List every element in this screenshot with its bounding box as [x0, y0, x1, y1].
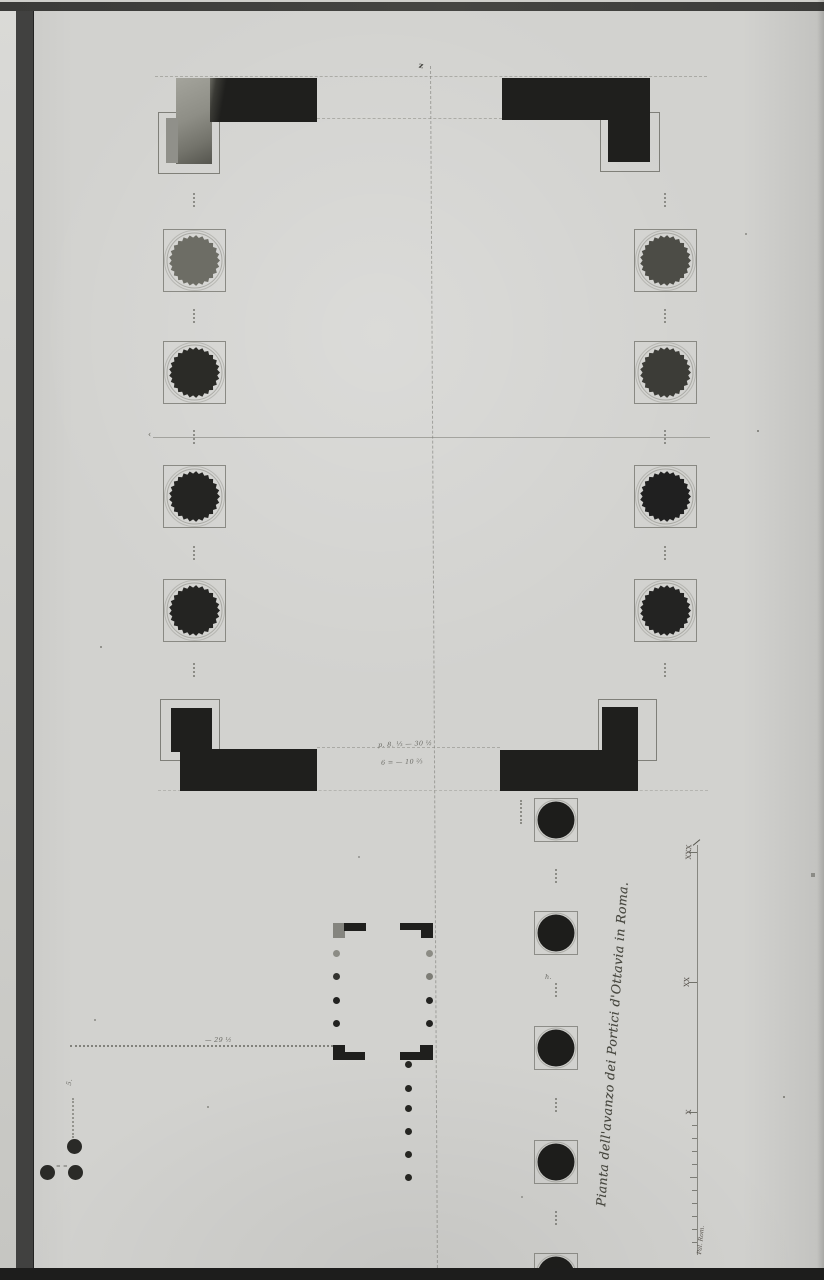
fluted-column-icon: [635, 466, 696, 527]
dimension-note-bottom: 6 = — 10 ⅔: [381, 757, 423, 766]
keyplan-right-dot-1: [426, 950, 433, 957]
keyplan-right-dot-2: [426, 973, 433, 980]
column-left-1: [163, 229, 226, 292]
keyplan-corner-4-1: [420, 1045, 433, 1060]
fluted-column-icon: [635, 580, 696, 641]
keyplan-lead-dot-5: [405, 1151, 412, 1158]
fluted-column-icon: [635, 230, 696, 291]
column-icon: [535, 1141, 577, 1183]
lower-axis-dots-2: [555, 983, 557, 997]
scale-unit-tick-2: [692, 1138, 697, 1139]
axis-dots-left-3: [193, 430, 195, 444]
column-icon: [535, 912, 577, 954]
scale-unit-tick-6: [692, 1190, 697, 1191]
axis-dots-right-1: [664, 193, 666, 207]
column-right-2: [634, 341, 697, 404]
scale-unit-tick-5: [690, 1177, 697, 1178]
lower-axis-dots-1: [555, 869, 557, 883]
lower-annotation-dots: [520, 800, 522, 824]
survey-dot-1: [67, 1139, 82, 1154]
photo-edge-left-light: [0, 0, 16, 1280]
keyplan-lead-dot-4: [405, 1128, 412, 1135]
column-left-2: [163, 341, 226, 404]
dimension-note-left: — 29 ½: [205, 1036, 232, 1044]
scale-unit-tick-7: [692, 1203, 697, 1204]
axis-dots-left-4: [193, 546, 195, 560]
scale-unit-tick-1: [692, 1125, 697, 1126]
axis-dots-left-2: [193, 309, 195, 323]
axis-dots-right-4: [664, 546, 666, 560]
keyplan-lead-dot-3: [405, 1105, 412, 1112]
keyplan-lead-dot-1: [405, 1061, 412, 1068]
keyplan-right-dot-3: [426, 997, 433, 1004]
keyplan-right-dot-4: [426, 1020, 433, 1027]
column-icon: [535, 799, 577, 841]
keyplan-left-dot-1: [333, 950, 340, 957]
axis-dots-left-1: [193, 193, 195, 207]
survey-dot-2: [40, 1165, 55, 1180]
lower-axis-dots-4: [555, 1211, 557, 1225]
axis-dots-right-2: [664, 309, 666, 323]
fluted-column-icon: [164, 580, 225, 641]
drawing-sheet: XXX XX X Pal. Rom. p. 8. ⅓ — 30 ½ 6 = — …: [0, 0, 824, 1280]
scale-unit-tick-4: [692, 1164, 697, 1165]
colonnade-layer: [0, 0, 824, 1280]
photo-edge-left-line: [33, 0, 34, 1280]
keyplan-corner-2-1: [421, 923, 433, 938]
column-left-3: [163, 465, 226, 528]
column-left-4: [163, 579, 226, 642]
survey-dot-3: [68, 1165, 83, 1180]
scale-label-xx: XX: [683, 977, 691, 987]
column-right-4: [634, 579, 697, 642]
axis-dots-right-5: [664, 663, 666, 677]
scale-label-x: X: [685, 1109, 693, 1114]
keyplan-left-dot-4: [333, 1020, 340, 1027]
keyplan-corner-3-2: [345, 1052, 365, 1060]
scale-unit-tick-3: [692, 1151, 697, 1152]
dimension-arrow-tick: ‹: [148, 430, 151, 439]
lower-column-2: [534, 911, 578, 955]
photo-edge-top-dark: [0, 2, 824, 11]
scale-unit-tick-8: [692, 1216, 697, 1217]
keyplan-corner-1-2: [344, 923, 366, 931]
fluted-column-icon: [635, 342, 696, 403]
lower-column-4: [534, 1140, 578, 1184]
axis-dots-right-3: [664, 430, 666, 444]
keyplan-corner-3-1: [333, 1045, 345, 1060]
scale-label-xxx: XXX: [685, 844, 694, 859]
squiggle-note: 5.: [65, 1078, 74, 1086]
equal-marks-note: = =: [56, 1164, 68, 1170]
axis-dots-left-5: [193, 663, 195, 677]
photographed-plan-drawing: XXX XX X Pal. Rom. p. 8. ⅓ — 30 ½ 6 = — …: [0, 0, 824, 1280]
lower-column-3: [534, 1026, 578, 1070]
keyplan-corner-2-2: [400, 923, 422, 930]
keyplan-lead-dot-6: [405, 1174, 412, 1181]
photo-edge-bottom-dark: [0, 1268, 824, 1280]
keyplan-corner-4-2: [400, 1052, 420, 1060]
fluted-column-icon: [164, 230, 225, 291]
fluted-column-icon: [164, 342, 225, 403]
scale-unit-tick-9: [692, 1229, 697, 1230]
column-right-3: [634, 465, 697, 528]
column-right-1: [634, 229, 697, 292]
keyplan-lead-dot-2: [405, 1085, 412, 1092]
photo-edge-left-dark: [16, 0, 33, 1280]
keyplan-left-dot-2: [333, 973, 340, 980]
h-mark-note: h.: [545, 973, 552, 981]
fluted-column-icon: [164, 466, 225, 527]
lower-column-1: [534, 798, 578, 842]
photo-edge-right-shadow: [817, 0, 824, 1280]
column-icon: [535, 1027, 577, 1069]
keyplan-left-dot-3: [333, 997, 340, 1004]
lower-axis-dots-3: [555, 1098, 557, 1112]
